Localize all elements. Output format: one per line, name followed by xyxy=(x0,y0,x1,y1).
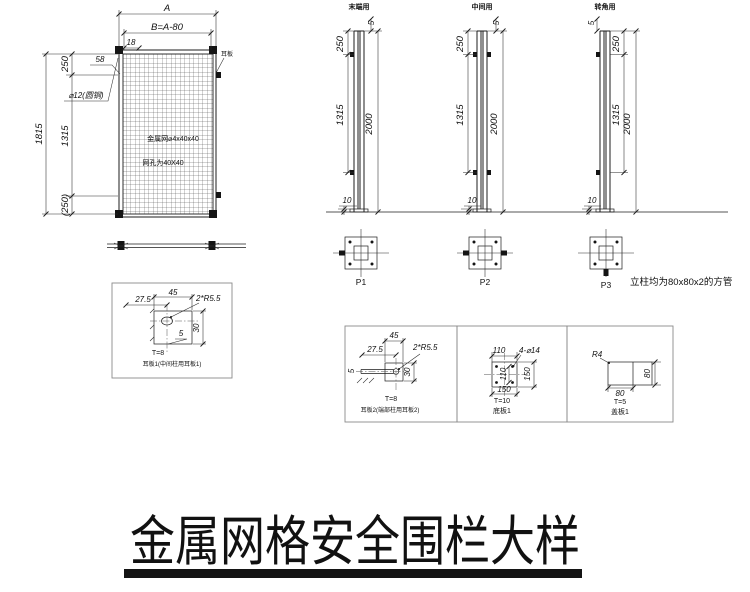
cap-radius-callout: R4 xyxy=(592,350,603,359)
base-plate-p3: P3 xyxy=(578,229,634,290)
base-hole xyxy=(495,381,498,384)
base-dim-width: 150 xyxy=(497,385,511,394)
ear-plate-2-detail: 45 27.5 2*R5.5 30 5 T=8 耳板2(端部柱用耳板2) xyxy=(345,326,457,422)
p1-label: P1 xyxy=(356,277,367,287)
ear1-thickness: T=8 xyxy=(152,350,164,357)
dim-panel-18: 18 xyxy=(127,38,136,47)
p1-ear-tab xyxy=(339,251,345,256)
base-hole xyxy=(495,365,498,368)
post3-dim-plate: 10 xyxy=(588,196,597,205)
ear2-dim-width: 45 xyxy=(390,331,399,340)
base-caption: 底板1 xyxy=(493,406,511,415)
dim-panel-bottom: (250) xyxy=(60,194,71,216)
post2-dim-plate: 10 xyxy=(468,196,477,205)
post3-dim-lower: 1315 xyxy=(611,104,622,126)
plan-view-posts xyxy=(118,241,216,250)
ear1-dim-offset: 27.5 xyxy=(134,295,151,304)
panel-plan-view xyxy=(107,241,246,250)
title-underline-bar xyxy=(124,569,582,578)
post3-usage-label: 转角用 xyxy=(595,2,616,11)
base-dim-spacing: 110 xyxy=(493,346,506,355)
detail-border xyxy=(567,326,673,422)
p2-label: P2 xyxy=(480,277,491,287)
post2-dim-total: 2000 xyxy=(489,113,500,136)
p2-bolt xyxy=(495,241,498,244)
base-hole xyxy=(511,381,514,384)
dim-panel-top: 250 xyxy=(60,55,71,73)
post1-dim-offset: 5 xyxy=(367,20,376,25)
detail-border xyxy=(457,326,567,422)
mesh-grid xyxy=(123,54,213,214)
post3-ear-tabs xyxy=(596,52,600,175)
base-dim-height: 150 xyxy=(523,367,532,381)
cap-dim-width: 80 xyxy=(616,389,625,398)
cap-caption: 盖板1 xyxy=(611,407,629,416)
panel-ear-tabs xyxy=(216,72,221,198)
post1-dim-plate: 10 xyxy=(343,196,352,205)
p2-bolt xyxy=(473,241,476,244)
base-dim-inner: 110 xyxy=(499,367,508,380)
ear1-dim-gap: 5 xyxy=(179,329,184,338)
post1-body xyxy=(354,31,364,212)
post2-dim-lower: 1315 xyxy=(455,104,466,126)
p2-bolt xyxy=(495,263,498,266)
ear1-hole-callout: 2*R5.5 xyxy=(195,294,221,303)
base-plate-p1: P1 xyxy=(333,229,389,287)
post1-dim-total: 2000 xyxy=(364,113,375,136)
drawing-canvas: A B=A-80 18 58 ⌀12(圆钢) 1815 250 1315 (25… xyxy=(0,0,750,592)
post-end-elevation: 末端用 5 250 1315 2000 10 xyxy=(335,2,382,215)
ear-plate-1-detail: 45 27.5 2*R5.5 30 5 T=8 耳板1(中间柱用耳板1) xyxy=(112,283,232,378)
p1-bolt xyxy=(371,241,374,244)
post1-dim-upper: 250 xyxy=(335,35,346,53)
post2-body xyxy=(477,31,487,212)
post3-dim-total: 2000 xyxy=(622,113,633,136)
ear2-plate xyxy=(385,363,403,381)
dim-panel-58: 58 xyxy=(96,55,105,64)
ear2-dim-height: 30 xyxy=(403,367,412,376)
dim-panel-width-b: B=A-80 xyxy=(151,22,184,33)
dim-panel-width-a: A xyxy=(163,3,170,14)
ear2-caption: 耳板2(端部柱用耳板2) xyxy=(361,406,420,414)
post3-dim-upper: 250 xyxy=(611,35,622,53)
mesh-spec-note: 金属网⌀4x40x40 xyxy=(147,134,199,143)
p3-bolt xyxy=(616,263,619,266)
cap-leader-dot xyxy=(608,362,610,364)
post3-dim-offset: 5 xyxy=(587,20,596,25)
mesh-opening-note: 网孔为40X40 xyxy=(142,158,183,167)
post1-ear-tabs xyxy=(350,52,354,175)
label-ear-plate: 耳板 xyxy=(221,50,233,58)
post-middle-elevation: 中间用 5 250 1315 2000 10 xyxy=(455,2,507,215)
base-leader-dot xyxy=(513,365,515,367)
post2-dim-upper: 250 xyxy=(455,35,466,53)
mesh-panel-elevation: A B=A-80 18 58 ⌀12(圆钢) 1815 250 1315 (25… xyxy=(34,3,233,218)
p1-bolt xyxy=(349,241,352,244)
base-thickness: T=10 xyxy=(494,398,510,405)
ear2-thickness: T=8 xyxy=(385,396,397,403)
p3-bolt xyxy=(594,241,597,244)
post2-dimension-lines xyxy=(461,19,507,215)
ear1-leader-dot xyxy=(170,316,172,318)
post2-base-plate xyxy=(473,209,491,212)
label-round-bar: ⌀12(圆钢) xyxy=(68,91,103,100)
cap-dim-height: 80 xyxy=(643,369,652,378)
p2-bolt xyxy=(473,263,476,266)
ear2-dim-offset: 27.5 xyxy=(366,345,383,354)
ear2-hole-callout: 2*R5.5 xyxy=(412,343,438,352)
cap-thickness: T=5 xyxy=(614,399,626,406)
cad-drawing-sheet: A B=A-80 18 58 ⌀12(圆钢) 1815 250 1315 (25… xyxy=(0,0,750,592)
post1-dim-lower: 1315 xyxy=(335,104,346,126)
post2-dim-offset: 5 xyxy=(492,20,501,25)
p3-bolt xyxy=(616,241,619,244)
post3-base-plate xyxy=(596,209,614,212)
post3-body xyxy=(600,31,610,212)
base-holes-callout: 4-⌀14 xyxy=(519,346,540,355)
plan-view-rails xyxy=(107,244,246,248)
base-plate-p2: P2 xyxy=(457,229,513,287)
ear1-caption: 耳板1(中间柱用耳板1) xyxy=(143,360,202,368)
dim-panel-mid: 1315 xyxy=(60,125,71,147)
ear2-leader-dot xyxy=(398,368,400,370)
p3-bolt xyxy=(594,263,597,266)
p1-bolt xyxy=(349,263,352,266)
post1-usage-label: 末端用 xyxy=(349,2,370,11)
ear1-dim-height: 30 xyxy=(192,323,201,332)
ear2-dim-gap: 5 xyxy=(347,368,356,373)
p3-label: P3 xyxy=(601,280,612,290)
title-block: 金属网格安全围栏大样 xyxy=(124,512,582,578)
post-spec-note: 立柱均为80x80x2的方管 xyxy=(630,276,732,288)
post2-usage-label: 中间用 xyxy=(472,2,493,11)
drawing-title: 金属网格安全围栏大样 xyxy=(130,512,580,572)
post-corner-elevation: 转角用 5 250 1315 2000 10 xyxy=(582,2,640,215)
ear1-dim-width: 45 xyxy=(169,288,178,297)
cap-plate-detail: R4 80 80 T=5 盖板1 xyxy=(567,326,673,422)
p1-bolt xyxy=(371,263,374,266)
dim-panel-total-height: 1815 xyxy=(34,123,45,145)
post1-base-plate xyxy=(350,209,368,212)
base-plate-detail: 110 4-⌀14 110 150 150 T=10 底板1 xyxy=(457,326,567,422)
p3-ear-tab xyxy=(604,269,609,276)
